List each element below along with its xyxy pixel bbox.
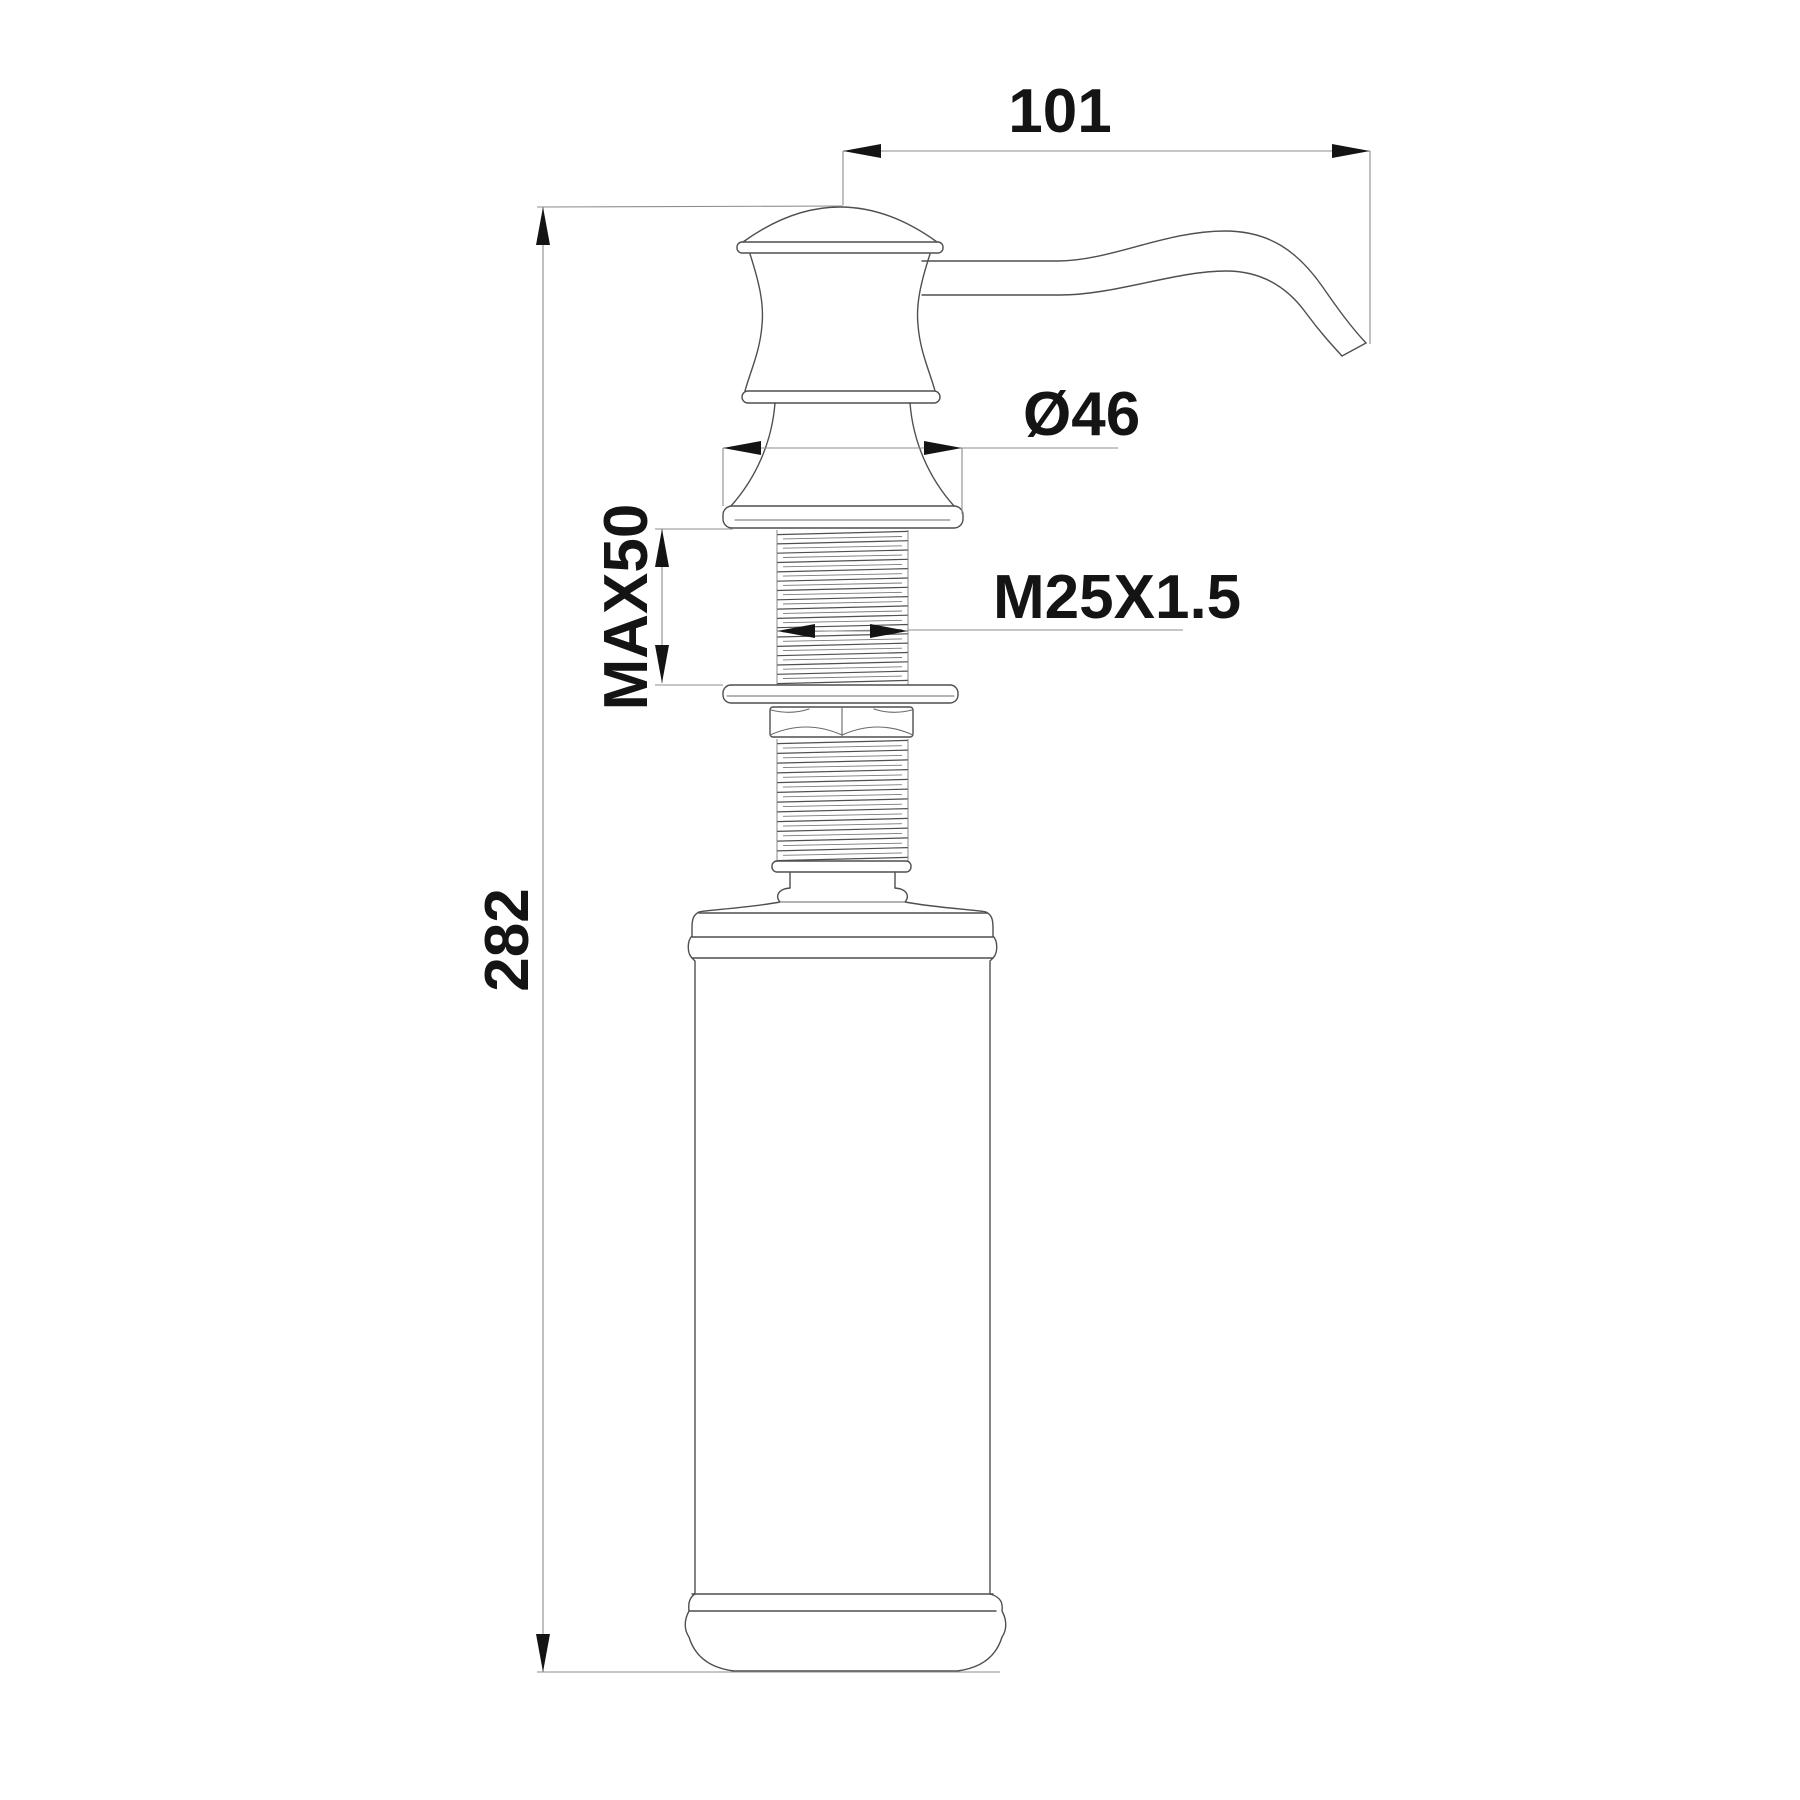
thread-ridge-minor [783, 555, 902, 557]
thread-ridge [777, 809, 908, 812]
thread-ridge-minor [783, 592, 902, 594]
thread-ridge-minor [783, 537, 902, 539]
dim-282-arrow-bottom [536, 1634, 550, 1672]
thread-ridge-minor [783, 611, 902, 613]
thread-ridge [777, 643, 908, 646]
thread-ridge [777, 740, 908, 743]
spout-top-edge [922, 231, 1366, 343]
thread-ridge [777, 760, 908, 763]
thread-ridge [777, 848, 908, 851]
upper-thread [777, 530, 908, 685]
thread-ridge-minor [783, 804, 902, 806]
spout-bottom-edge [922, 271, 1342, 356]
thread-ridge [777, 750, 908, 753]
thread-ridge [777, 818, 908, 821]
thread-ridge [777, 550, 908, 553]
thread-ridge [777, 799, 908, 802]
pump-head-lower-brim [742, 391, 940, 403]
dim-101-arrow-right [1332, 144, 1370, 158]
bottle-bottom-cap [685, 1594, 1006, 1671]
thread-ridge [777, 671, 908, 674]
thread-ridge-minor [783, 574, 902, 576]
thread-ridge-minor [783, 775, 902, 777]
spout-tip [1342, 343, 1366, 356]
dim-d46-arrow-left [723, 441, 761, 455]
thread-ridge [777, 662, 908, 665]
dim-m25-label: M25X1.5 [993, 563, 1241, 632]
thread-ridge-minor [783, 546, 902, 548]
dim-flange-diameter: Ø46 [723, 380, 1140, 514]
thread-ridge-minor [783, 824, 902, 826]
thread-ridge [777, 569, 908, 572]
thread-ridge-minor [783, 765, 902, 767]
flange-right-curve [910, 403, 954, 506]
thread-ridge [777, 828, 908, 831]
thread-ridge [777, 597, 908, 600]
thread-ridge-minor [783, 794, 902, 796]
dim-max50-label: MAX50 [592, 504, 661, 711]
thread-ridge [777, 615, 908, 618]
collar [772, 861, 911, 872]
pump-head-dome [743, 207, 937, 242]
dim-spout-reach: 101 [843, 77, 1370, 344]
thread-ridge-minor [783, 746, 902, 748]
thread-ridge-minor [783, 648, 902, 650]
bottle-left-outline [688, 888, 790, 1594]
dim-thread-spec: M25X1.5 [777, 563, 1241, 638]
pump-head [737, 207, 943, 403]
thread-ridge [777, 779, 908, 782]
thread-ridge [777, 857, 908, 860]
dim-282-arrow-top [536, 207, 550, 245]
dim-101-arrow-left [843, 144, 881, 158]
drawing-canvas: 101 Ø46 MAX50 M25X1.5 282 [0, 0, 1800, 1800]
thread-ridge-minor [783, 785, 902, 787]
drawing-page: 101 Ø46 MAX50 M25X1.5 282 [0, 0, 1800, 1800]
thread-ridge-minor [783, 843, 902, 845]
thread-ridge [777, 531, 908, 534]
thread-ridge [777, 770, 908, 773]
spout [922, 231, 1366, 356]
thread-ridge [777, 680, 908, 683]
nut-chamfer-right [842, 727, 913, 735]
thread-ridge [777, 789, 908, 792]
thread-ridge-minor [783, 639, 902, 641]
flange-base [723, 506, 963, 528]
thread-ridge [777, 606, 908, 609]
thread-ridge-minor [783, 833, 902, 835]
dim-d46-arrow-right [924, 441, 962, 455]
washer-plate [723, 685, 958, 703]
hex-nut [770, 707, 913, 737]
bottle-right-outline [895, 888, 997, 1594]
thread-ridge-minor [783, 583, 902, 585]
dim-282-ext-top [537, 206, 843, 207]
pump-head-waist-left [745, 254, 763, 391]
collar-and-neck [772, 861, 911, 888]
pump-head-brim [737, 242, 943, 253]
thread-ridge [777, 653, 908, 656]
bottle [685, 888, 1006, 1671]
thread-ridge [777, 625, 908, 628]
flange-left-curve [731, 403, 775, 506]
dim-101-label: 101 [1008, 77, 1111, 146]
nut-top-chamfer-left [771, 709, 809, 712]
lower-thread [777, 739, 908, 862]
thread-ridge [777, 578, 908, 581]
thread-ridge [777, 541, 908, 544]
thread-ridge [777, 587, 908, 590]
dim-overall-height: 282 [473, 206, 1000, 1672]
thread-ridge-minor [783, 564, 902, 566]
dim-m25-arrow-right [870, 624, 908, 638]
thread-ridge-minor [783, 667, 902, 669]
dim-max-deck-thickness: MAX50 [592, 504, 733, 711]
flange [723, 403, 963, 528]
thread-ridge [777, 559, 908, 562]
thread-ridge-minor [783, 853, 902, 855]
pump-head-waist-right [918, 254, 936, 391]
thread-ridge-minor [783, 620, 902, 622]
nut-chamfer-left [770, 727, 842, 735]
washer [723, 685, 958, 703]
thread-ridge-minor [783, 814, 902, 816]
nut-top-chamfer-right [874, 709, 912, 712]
dim-d46-label: Ø46 [1023, 380, 1140, 449]
thread-ridge-minor [783, 602, 902, 604]
thread-ridge-minor [783, 658, 902, 660]
thread-ridge [777, 838, 908, 841]
dim-282-label: 282 [473, 888, 542, 991]
thread-ridge-minor [783, 676, 902, 678]
dim-m25-arrow-left [777, 624, 815, 638]
thread-ridge-minor [783, 755, 902, 757]
